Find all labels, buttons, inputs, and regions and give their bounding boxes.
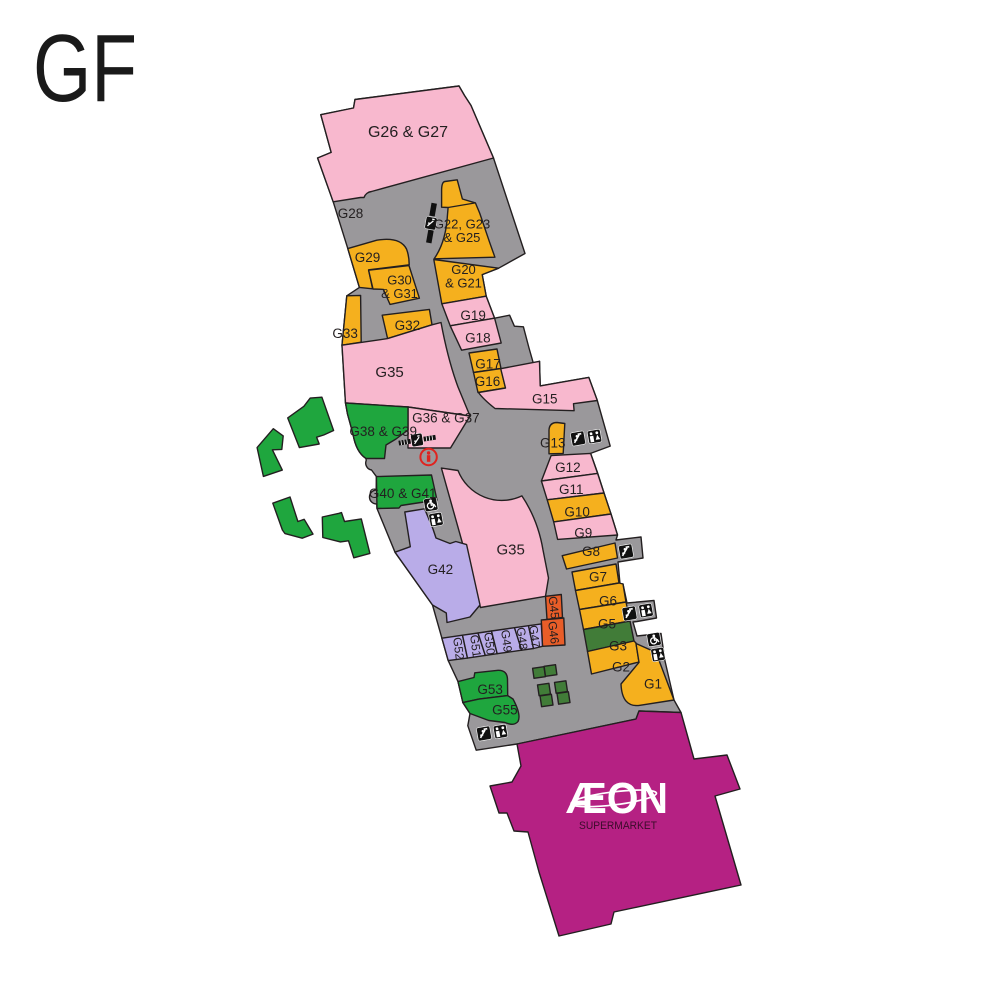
svg-text:G17: G17 [475, 357, 501, 372]
svg-text:G11: G11 [559, 482, 584, 497]
svg-text:G18: G18 [465, 331, 491, 346]
svg-text:G7: G7 [589, 570, 607, 585]
svg-text:G46: G46 [545, 620, 562, 645]
svg-text:G28: G28 [338, 206, 364, 221]
svg-text:G13: G13 [540, 436, 566, 451]
svg-text:G12: G12 [555, 460, 581, 475]
svg-text:G19: G19 [460, 308, 486, 323]
svg-text:G2: G2 [612, 660, 630, 675]
svg-text:G53: G53 [477, 682, 503, 697]
svg-text:G5: G5 [598, 617, 616, 632]
svg-text:G3: G3 [609, 639, 627, 654]
svg-text:G52: G52 [450, 636, 467, 661]
svg-text:G32: G32 [395, 318, 421, 333]
svg-text:G6: G6 [599, 594, 617, 609]
svg-text:G8: G8 [582, 544, 600, 559]
svg-text:G1: G1 [644, 677, 662, 692]
svg-text:G33: G33 [332, 326, 358, 341]
svg-text:G51: G51 [467, 634, 484, 659]
svg-text:& G21: & G21 [445, 275, 482, 290]
svg-text:& G25: & G25 [444, 230, 481, 245]
svg-text:G9: G9 [574, 526, 592, 541]
svg-text:G16: G16 [475, 374, 501, 389]
svg-text:G10: G10 [564, 505, 590, 520]
svg-text:G42: G42 [428, 562, 454, 577]
svg-text:G36 & G37: G36 & G37 [412, 411, 480, 426]
svg-text:G26 & G27: G26 & G27 [368, 124, 448, 141]
svg-text:& G31: & G31 [381, 286, 418, 301]
svg-text:G35: G35 [497, 542, 525, 559]
svg-text:G38 & G39: G38 & G39 [349, 424, 417, 439]
svg-text:G45: G45 [545, 595, 562, 620]
svg-text:G15: G15 [532, 392, 558, 407]
svg-text:G49: G49 [498, 629, 515, 654]
svg-text:GF: GF [33, 15, 137, 122]
svg-text:G48: G48 [514, 626, 531, 651]
svg-text:G40 & G41: G40 & G41 [369, 486, 437, 501]
svg-text:G29: G29 [355, 250, 381, 265]
svg-text:G35: G35 [375, 364, 403, 381]
svg-text:G55: G55 [492, 703, 518, 718]
svg-text:SUPERMARKET: SUPERMARKET [579, 820, 657, 832]
